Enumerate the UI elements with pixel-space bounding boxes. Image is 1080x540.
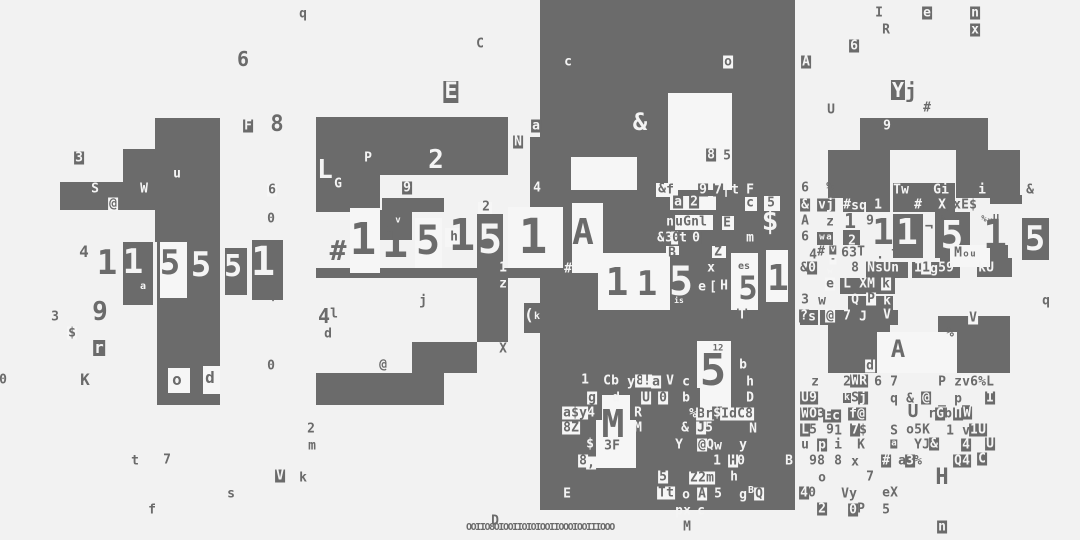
glyph: Q: [706, 439, 714, 452]
glyph: a: [531, 120, 541, 133]
glyph: 5: [224, 252, 242, 282]
glyph: 9: [826, 424, 834, 437]
glyph: C: [476, 38, 484, 51]
glyph: z: [811, 376, 819, 389]
glyph: is: [674, 297, 684, 305]
glyph: e: [922, 7, 932, 20]
glyph: k: [843, 393, 851, 403]
glyph: c: [746, 197, 754, 210]
glyph: 2: [817, 503, 827, 516]
glyph: Y: [914, 439, 922, 452]
glyph: y: [739, 439, 747, 452]
glyph: 8: [817, 455, 825, 468]
glyph: U: [986, 262, 994, 275]
glyph: c: [682, 376, 690, 389]
glyph: X: [937, 199, 947, 212]
glyph: 6: [801, 231, 809, 244]
glyph: I: [875, 7, 883, 20]
glyph: Z: [570, 422, 580, 435]
glyph: @: [108, 198, 118, 211]
glyph: M: [867, 278, 875, 291]
glyph: j: [905, 81, 917, 101]
glyph: 1: [499, 262, 507, 275]
glyph: x: [953, 199, 961, 212]
glyph: X: [859, 278, 867, 291]
glyph: a: [673, 196, 683, 209]
glyph: S: [890, 425, 898, 438]
glyph: R: [634, 407, 642, 420]
glyph: 8: [744, 408, 754, 421]
glyph: 5: [478, 220, 502, 260]
glyph: %: [914, 455, 922, 468]
glyph: 3: [849, 247, 857, 260]
glyph: 9: [808, 392, 818, 405]
glyph: 1: [844, 211, 856, 231]
glyph: R: [858, 375, 868, 388]
glyph: 3: [51, 311, 59, 324]
glyph: 4: [587, 407, 595, 420]
glyph: d: [612, 392, 620, 405]
glyph: u: [173, 168, 181, 181]
glyph: C: [977, 453, 987, 466]
glyph: 1: [767, 261, 789, 297]
glyph: 1: [834, 425, 842, 438]
glyph: y: [627, 376, 635, 389]
glyph: n: [665, 216, 675, 229]
glyph: k: [534, 312, 540, 322]
glyph: X: [499, 343, 507, 356]
glyph: Y: [891, 80, 905, 100]
block-rect: [316, 373, 444, 405]
glyph: W: [140, 183, 148, 196]
glyph: n: [937, 521, 947, 534]
glyph: A: [891, 337, 905, 361]
glyph: U: [908, 403, 919, 421]
glyph: 5: [738, 272, 757, 304]
glyph: $: [859, 424, 867, 437]
glyph: 7: [163, 454, 171, 467]
glyph: #: [913, 199, 923, 212]
glyph: 7: [866, 471, 874, 484]
glyph: b: [682, 392, 690, 405]
glyph: x: [683, 505, 691, 518]
glyph: 3: [74, 152, 84, 165]
glyph: 5: [160, 246, 180, 280]
glyph: 5: [705, 422, 713, 435]
glyph: @: [379, 359, 387, 372]
glyph: 6: [874, 376, 882, 389]
glyph: l: [699, 216, 707, 229]
glyph: _: [938, 394, 946, 407]
glyph: 5: [882, 504, 890, 517]
glyph: $: [67, 327, 77, 340]
glyph: I: [985, 392, 995, 405]
glyph: Q: [754, 488, 764, 501]
glyph: 1: [713, 455, 721, 468]
glyph: y: [849, 488, 857, 501]
glyph: A: [697, 488, 707, 501]
glyph: q: [859, 200, 867, 213]
glyph: E: [961, 199, 969, 212]
block-rect: [316, 198, 352, 212]
glyph: T: [737, 309, 747, 322]
glyph: 1: [350, 218, 377, 262]
glyph: #: [330, 237, 347, 265]
glyph: n: [891, 262, 899, 275]
glyph: a: [826, 234, 831, 243]
glyph: 8: [706, 149, 716, 162]
glyph: 6: [841, 247, 849, 260]
block-rect: [956, 150, 1020, 198]
glyph: #: [923, 102, 931, 115]
glyph: 6: [267, 184, 277, 197]
glyph: 5: [700, 349, 727, 393]
glyph: V: [841, 488, 849, 501]
glyph: V: [666, 375, 674, 388]
glyph: a: [651, 376, 661, 389]
glyph: g: [587, 392, 597, 405]
glyph: o: [818, 472, 826, 485]
glyph: c: [564, 56, 572, 69]
glyph: %: [946, 327, 954, 340]
glyph: &: [800, 199, 810, 212]
glyph: B: [668, 247, 676, 260]
glyph: t: [678, 232, 688, 245]
glyph: &: [929, 438, 939, 451]
glyph: #: [817, 246, 825, 259]
glyph: 9: [883, 120, 891, 133]
glyph: s: [875, 262, 883, 275]
glyph: U: [977, 424, 987, 437]
glyph: @: [856, 408, 866, 421]
glyph: M: [634, 422, 642, 435]
glyph: 5: [1025, 222, 1045, 256]
glyph: 3: [801, 294, 809, 307]
glyph: w: [827, 268, 832, 277]
glyph: x: [970, 24, 980, 37]
glyph: U: [641, 392, 651, 405]
glyph: m: [745, 232, 755, 245]
glyph: V: [883, 309, 891, 322]
glyph: R: [882, 24, 890, 37]
glyph: q: [890, 393, 898, 406]
glyph: 5: [723, 150, 731, 163]
block-rect: [990, 195, 1022, 204]
glyph: 5: [809, 424, 817, 437]
glyph: 1: [123, 245, 143, 279]
glyph: j: [858, 392, 868, 405]
glyph: [: [709, 281, 717, 294]
glyph: g: [739, 489, 747, 502]
glyph: V: [968, 312, 978, 325]
block-rect: [412, 342, 477, 373]
glyph: k: [883, 295, 891, 308]
glyph: x: [851, 456, 859, 469]
glyph: P: [866, 293, 876, 306]
block-rect: [123, 149, 155, 210]
glyph: $: [762, 207, 779, 235]
glyph: b: [739, 359, 747, 372]
glyph: 0: [658, 392, 668, 405]
glyph: c: [697, 505, 705, 518]
glyph: K: [80, 372, 90, 388]
glyph: 8: [834, 455, 842, 468]
glyph: 1: [946, 425, 954, 438]
glyph: E: [563, 488, 571, 501]
glyph: l: [330, 308, 338, 321]
glyph: G: [683, 216, 691, 229]
glyph: A: [572, 215, 594, 251]
glyph: 2: [482, 201, 490, 214]
glyph: 9: [402, 182, 412, 195]
glyph: p: [817, 439, 827, 452]
glyph: s: [807, 311, 817, 324]
glyph: G: [933, 184, 941, 197]
glyph: 4: [318, 306, 330, 326]
glyph: u: [801, 439, 809, 452]
block-rect: [155, 118, 220, 242]
block-rect: [316, 117, 508, 175]
glyph: @: [921, 392, 931, 405]
glyph: H: [935, 467, 948, 489]
glyph: 2: [428, 147, 444, 173]
glyph: U: [827, 104, 835, 117]
glyph: j: [825, 199, 835, 212]
glyph: i: [978, 184, 986, 197]
glyph: ,: [586, 457, 596, 470]
glyph: p: [675, 505, 683, 518]
glyph: Y: [675, 439, 683, 452]
glyph: K: [922, 424, 930, 437]
glyph: #: [564, 263, 572, 276]
glyph: T: [857, 246, 865, 259]
glyph: 9: [92, 299, 108, 325]
glyph: q: [1042, 295, 1050, 308]
glyph: d: [324, 328, 332, 341]
glyph: 2: [689, 196, 699, 209]
glyph: A: [801, 215, 809, 228]
glyph: a: [890, 440, 897, 449]
glyph: k: [978, 262, 986, 275]
glyph: @: [825, 310, 835, 323]
glyph: T: [893, 184, 901, 197]
block-rect: [877, 332, 957, 373]
glyph: $: [586, 438, 594, 451]
glyph: E: [723, 217, 731, 230]
glyph: 3: [604, 440, 612, 453]
glyph: 0: [737, 455, 745, 468]
glyph: Z: [714, 246, 722, 259]
glyph: G: [334, 178, 342, 191]
glyph: 7: [890, 376, 898, 389]
glyph: ': [269, 298, 277, 311]
glyph: F: [612, 440, 620, 453]
glyph: 4: [961, 455, 971, 468]
glyph: M: [683, 521, 691, 534]
glyph: P: [857, 503, 865, 516]
glyph: 9: [698, 184, 708, 197]
glyph: 5: [658, 471, 668, 484]
glyph: u: [675, 216, 683, 229]
glyph: w: [901, 184, 909, 197]
block-rect: [530, 137, 544, 208]
glyph: t: [891, 247, 899, 260]
glyph: 1: [519, 213, 548, 261]
glyph: u: [970, 251, 975, 260]
glyph: t: [731, 184, 739, 197]
glyph: 0: [691, 232, 701, 245]
glyph: 6: [849, 40, 859, 53]
glyph: o: [172, 372, 182, 388]
block-rect: [957, 330, 1010, 373]
glyph: 6: [970, 376, 978, 389]
block-rect: [860, 118, 988, 150]
glyph: 1: [581, 374, 589, 387]
glyph: m: [308, 440, 316, 453]
glyph: K: [857, 439, 865, 452]
glyph: h: [746, 376, 754, 389]
glyph: -: [829, 256, 836, 265]
glyph: w: [818, 295, 826, 308]
glyph: %: [978, 376, 986, 389]
glyph: h: [730, 471, 738, 484]
glyph: w: [714, 440, 722, 453]
glyph: i: [941, 184, 949, 197]
glyph: b: [611, 375, 619, 388]
glyph: s: [227, 488, 235, 501]
glyph: e: [698, 281, 706, 294]
glyph: 9: [809, 455, 817, 468]
glyph: 5: [914, 424, 922, 437]
glyph: |: [722, 184, 730, 197]
glyph: z: [826, 216, 834, 229]
glyph: L: [843, 278, 851, 291]
glyph: e: [825, 278, 835, 291]
glyph: e: [882, 487, 890, 500]
glyph: 1: [449, 214, 476, 258]
glyph: t: [131, 455, 139, 468]
glyph: n: [691, 216, 699, 229]
glyph: j: [419, 295, 427, 308]
glyph: L: [317, 157, 333, 183]
glyph: 1: [983, 215, 1007, 255]
glyph: q: [299, 8, 307, 21]
glyph: 7: [843, 310, 851, 323]
glyph: M: [602, 405, 625, 443]
glyph: n: [970, 7, 980, 20]
glyph: (: [524, 307, 534, 323]
glyph: &: [1026, 184, 1034, 197]
glyph: 1: [382, 221, 409, 265]
glyph: J: [859, 311, 867, 324]
glyph: w: [819, 234, 824, 243]
glyph: A: [801, 56, 811, 69]
glyph: U: [883, 262, 891, 275]
block-rect: [668, 93, 732, 190]
glyph: 5: [416, 221, 440, 261]
block-rect: [571, 157, 637, 190]
glyph: B: [785, 455, 793, 468]
glyph: &: [633, 110, 647, 134]
glyph: W: [962, 407, 972, 420]
glyph: 1: [637, 267, 657, 301]
glyph: &: [681, 422, 689, 435]
glyph: H: [720, 280, 728, 293]
glyph: 0: [0, 374, 7, 387]
glyph: r: [93, 340, 105, 356]
glyph: 5: [714, 488, 722, 501]
glyph: N: [749, 423, 757, 436]
glyph: i: [834, 439, 842, 452]
glyph: o: [963, 251, 968, 260]
glyph: 1: [874, 199, 882, 212]
glyph: S: [91, 183, 99, 196]
glyph: t: [665, 487, 675, 500]
glyph: 8: [270, 114, 283, 136]
barcode-strip: OOIIO8OIOOIIOIOIOOIIOOOIOOIIIOOO: [466, 523, 614, 533]
glyph: d: [205, 370, 215, 386]
glyph: 12: [713, 345, 724, 354]
glyph: v: [829, 246, 836, 255]
glyph: d: [865, 360, 875, 373]
glyph: z: [499, 278, 507, 291]
glyph: U: [985, 438, 995, 451]
glyph: D: [746, 392, 754, 405]
glyph: C: [603, 375, 611, 388]
glyph: 6: [801, 182, 809, 195]
glyph: f: [148, 504, 156, 517]
glyph: M: [954, 247, 962, 260]
glyph: #: [881, 455, 891, 468]
glyph: $: [969, 199, 977, 212]
glyph: 2: [307, 423, 315, 436]
glyph: Q: [851, 294, 859, 307]
glyph: o: [906, 424, 914, 437]
glyph: m: [705, 472, 715, 485]
glyph: 8: [851, 262, 859, 275]
glyph: o: [723, 56, 733, 69]
glyph: ¬: [925, 220, 933, 234]
glyph: V: [275, 470, 285, 483]
glyph: X: [890, 487, 898, 500]
glyph: b: [944, 408, 952, 421]
glyph: 4: [533, 182, 541, 195]
glyph: 0: [267, 213, 275, 226]
glyph: %: [826, 182, 834, 195]
glyph: 4: [79, 244, 89, 260]
glyph: 0: [808, 487, 816, 500]
glyph: 1: [251, 242, 275, 282]
glyph: 9: [946, 262, 954, 275]
glyph: E: [443, 81, 458, 103]
glyph: c: [831, 410, 841, 423]
glyph: 4: [961, 439, 971, 452]
glyph: x: [707, 262, 715, 275]
glyph: P: [938, 376, 946, 389]
glyph: N: [513, 136, 523, 149]
glitch-art-canvas: qC6IenRx6AYj#U9F83uSW@60411a5551'93$rKod…: [0, 0, 1080, 540]
glyph: k: [881, 278, 891, 291]
glyph: 1: [896, 215, 918, 251]
glyph: o: [682, 489, 690, 502]
glyph: 5: [191, 248, 211, 282]
glyph: L: [986, 376, 994, 389]
glyph: 1: [606, 263, 629, 301]
glyph: a: [140, 282, 146, 292]
glyph: p: [954, 393, 962, 406]
glyph: 0: [807, 262, 817, 275]
glyph: &: [658, 183, 666, 196]
